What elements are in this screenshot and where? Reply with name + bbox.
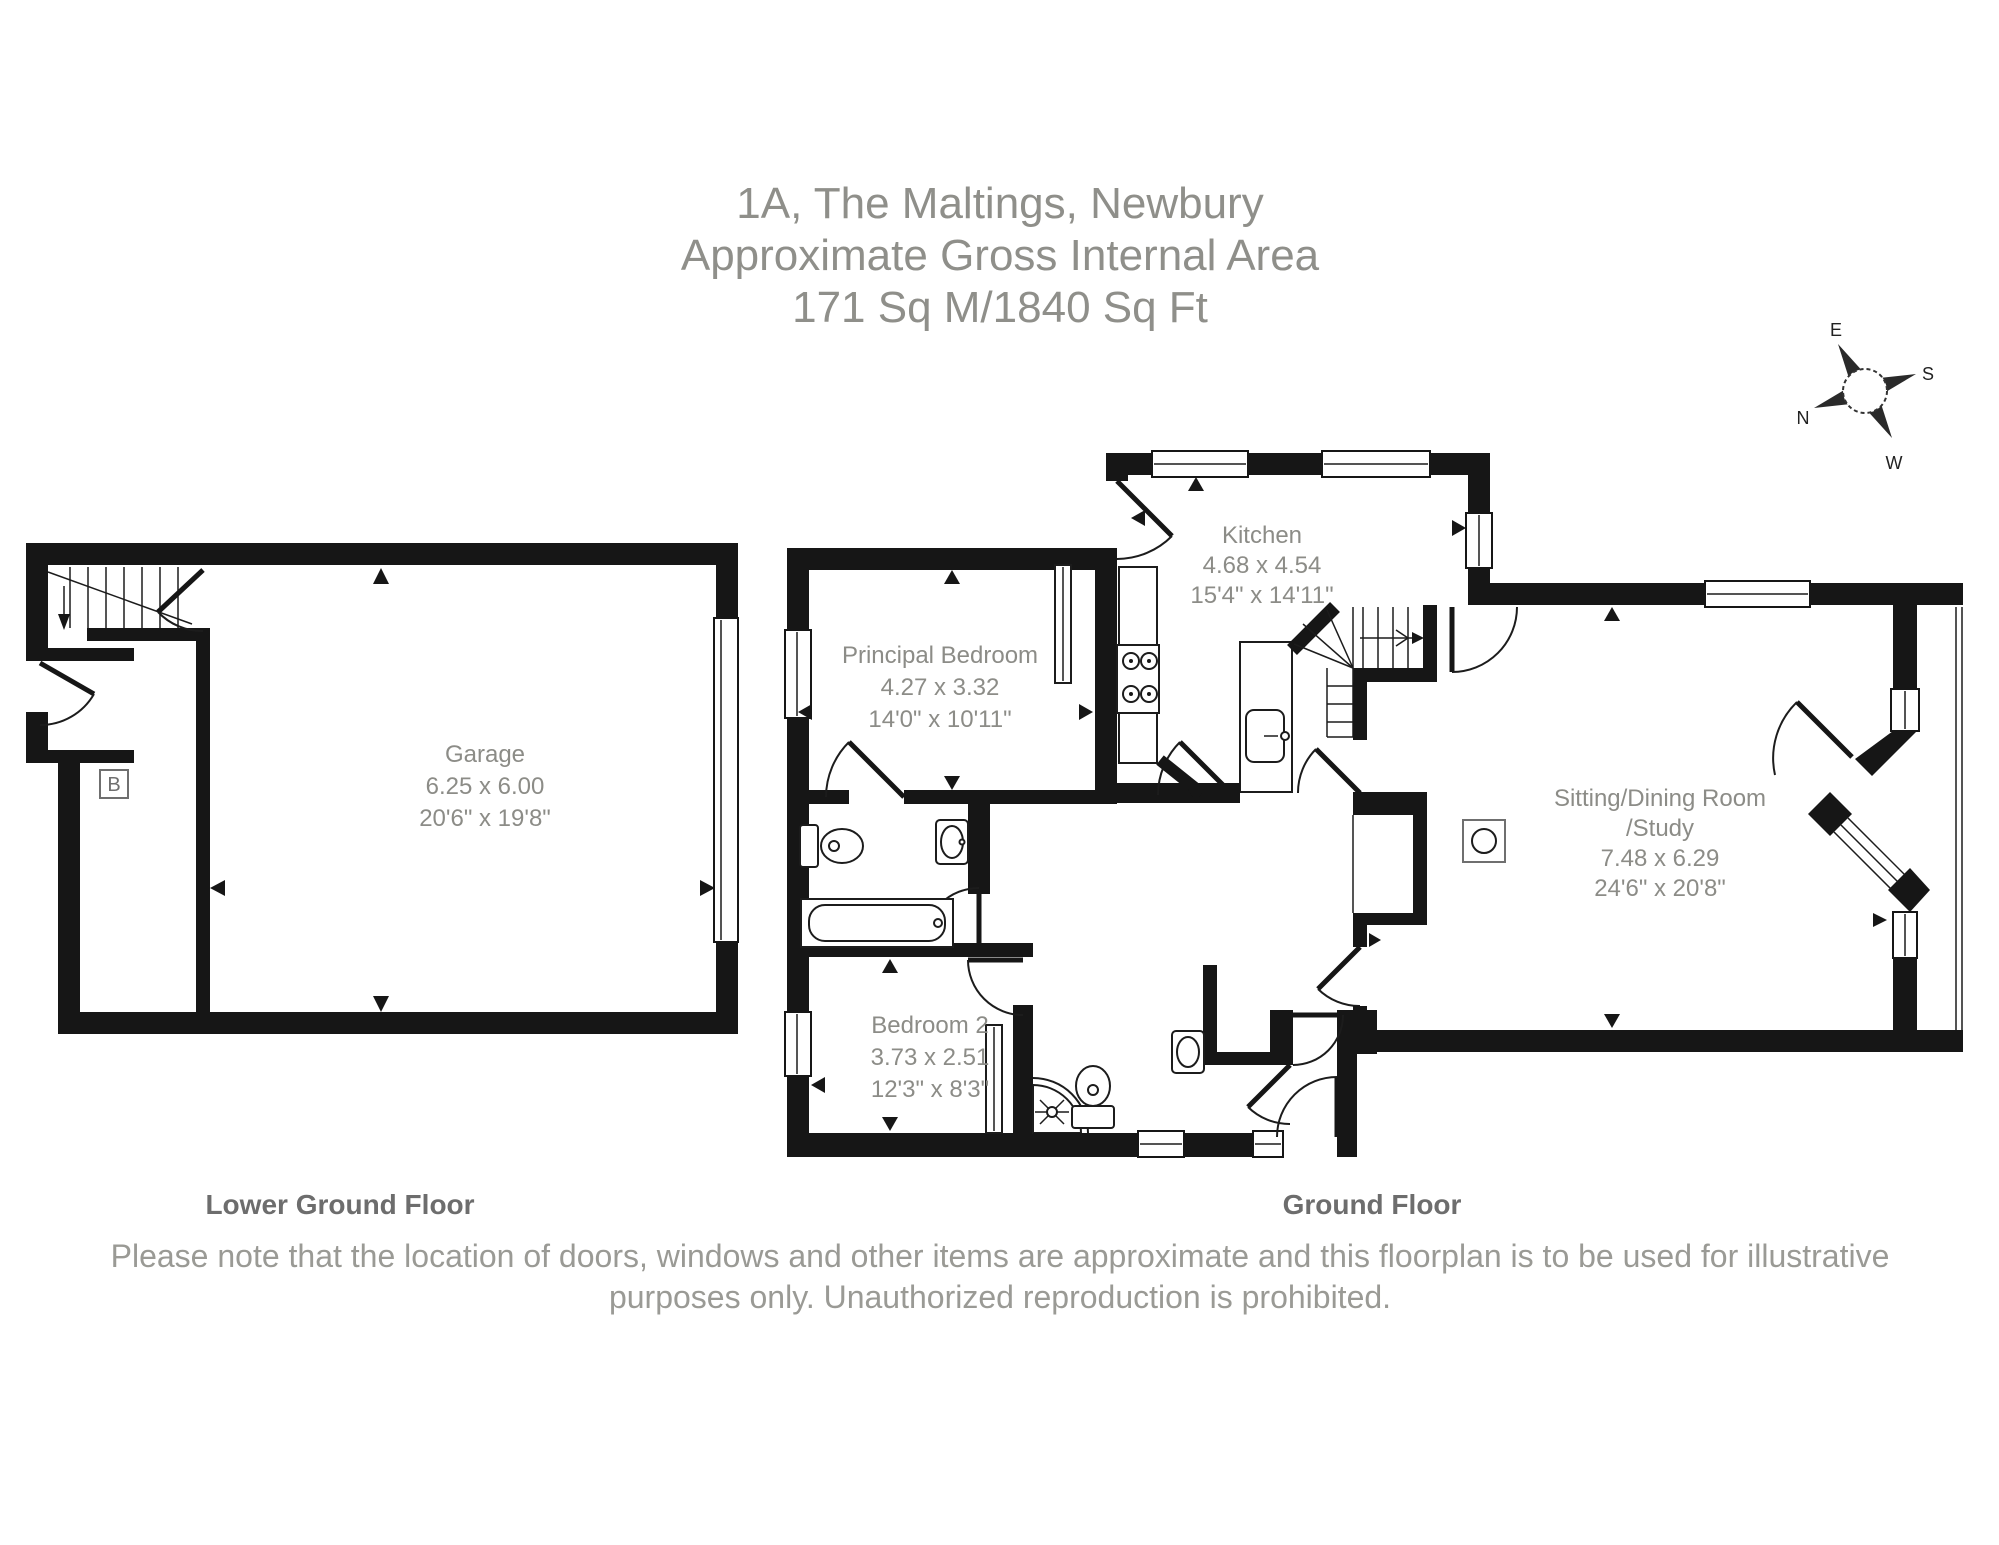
lgf-marker-bottom bbox=[373, 996, 389, 1012]
hall-lower-door bbox=[1293, 1015, 1343, 1065]
sitting-name: Sitting/Dining Room bbox=[1554, 785, 1766, 812]
compass-label-s: S bbox=[1922, 364, 1934, 384]
sitting-upper-door bbox=[1298, 749, 1360, 793]
lgf-marker-left bbox=[210, 880, 225, 896]
showerroom-door bbox=[1248, 1065, 1290, 1124]
title-block: 1A, The Maltings, Newbury Approximate Gr… bbox=[681, 179, 1320, 332]
bathroom-toilet bbox=[800, 825, 863, 867]
ground-floor-caption: Ground Floor bbox=[1283, 1189, 1462, 1220]
sitting-marker-right bbox=[1873, 913, 1887, 927]
entrance-door bbox=[1277, 1077, 1337, 1137]
sitting-top-door bbox=[1452, 607, 1517, 672]
bedroom2-metric: 3.73 x 2.51 bbox=[871, 1044, 990, 1071]
bedroom-window bbox=[785, 630, 811, 718]
lgf-corridor-door bbox=[40, 663, 94, 725]
bedroom2-marker-left bbox=[811, 1077, 825, 1093]
lgf-wall-bottom bbox=[58, 1012, 738, 1034]
principal-bedroom-metric: 4.27 x 3.32 bbox=[881, 674, 1000, 701]
disclaimer-line-2: purposes only. Unauthorized reproduction… bbox=[609, 1279, 1391, 1315]
bedroom2-wall-bottom bbox=[787, 1133, 1033, 1157]
bedroom-marker-top bbox=[944, 570, 960, 584]
kitchen-imperial: 15'4" x 14'11" bbox=[1190, 582, 1333, 609]
lgf-wall-divider bbox=[196, 628, 210, 1012]
hall-marker-right bbox=[1369, 933, 1381, 947]
ground-floor-plan: Kitchen 4.68 x 4.54 15'4" x 14'11" Princ… bbox=[785, 451, 1963, 1157]
kitchen-name: Kitchen bbox=[1222, 522, 1302, 549]
sitting-room-label: Sitting/Dining Room /Study 7.48 x 6.29 2… bbox=[1554, 785, 1766, 902]
bay-joint-lower bbox=[1888, 868, 1930, 912]
lgf-marker-right bbox=[700, 880, 715, 896]
lgf-wall-stub-2 bbox=[26, 750, 134, 763]
bedroom2-name: Bedroom 2 bbox=[871, 1012, 988, 1039]
sitting-bay bbox=[1773, 605, 1962, 1030]
bathroom-basin bbox=[936, 820, 968, 864]
sitting-name2: /Study bbox=[1626, 815, 1694, 842]
compass-label-w: W bbox=[1886, 453, 1903, 473]
kitchen-metric: 4.68 x 4.54 bbox=[1203, 552, 1322, 579]
lgf-stair-arrow-down bbox=[58, 614, 70, 630]
garage-door-window bbox=[714, 618, 738, 942]
bedroom-wall-right bbox=[1095, 548, 1117, 804]
compass-label-n: N bbox=[1797, 408, 1810, 428]
showerroom-basin bbox=[1172, 1031, 1204, 1073]
chimney-breast bbox=[1353, 792, 1427, 925]
bedroom2-imperial: 12'3" x 8'3" bbox=[871, 1076, 989, 1103]
bathtub bbox=[801, 899, 953, 947]
sitting-marker-top bbox=[1604, 607, 1620, 621]
kitchen-wall-left-top bbox=[1106, 453, 1128, 481]
compass-hub bbox=[1843, 369, 1887, 413]
kitchen-wall-right-upper bbox=[1468, 453, 1490, 513]
lgf-wall-right-upper bbox=[716, 543, 738, 623]
bedroom2-window bbox=[785, 1012, 811, 1076]
kitchen-marker-top bbox=[1188, 477, 1204, 491]
hall-divider-stub-mid bbox=[1353, 925, 1367, 947]
lgf-wall-left-upper bbox=[26, 543, 48, 648]
compass-label-e: E bbox=[1830, 320, 1842, 340]
bedroom2-marker-bottom bbox=[882, 1117, 898, 1131]
entrance-wall-right bbox=[1337, 1052, 1357, 1157]
lower-ground-floor-caption: Lower Ground Floor bbox=[205, 1189, 474, 1220]
bedroom2-marker-top bbox=[882, 959, 898, 973]
lgf-garage-door bbox=[158, 570, 203, 631]
title-area-value: 171 Sq M/1840 Sq Ft bbox=[792, 283, 1208, 332]
bedroom-marker-right bbox=[1079, 704, 1093, 720]
sitting-imperial: 24'6" x 20'8" bbox=[1594, 875, 1726, 902]
bathroom-wall-right bbox=[968, 804, 990, 894]
bedroom2-wall-right bbox=[1013, 1005, 1033, 1133]
disclaimer-line-1: Please note that the location of doors, … bbox=[111, 1238, 1890, 1274]
principal-bedroom-room-label: Principal Bedroom 4.27 x 3.32 14'0" x 10… bbox=[842, 642, 1038, 733]
bedroom-wall-bottom-left bbox=[787, 790, 849, 804]
wood-stove bbox=[1463, 820, 1505, 862]
entrance-wall-bottom-1 bbox=[1033, 1133, 1138, 1157]
sitting-marker-bottom bbox=[1604, 1014, 1620, 1028]
bedroom-door bbox=[826, 742, 904, 797]
lower-ground-floor-plan: B Garage 6.25 x 6.00 20'6" x 19'8" bbox=[26, 543, 738, 1034]
lgf-marker-top bbox=[373, 568, 389, 584]
garage-imperial: 20'6" x 19'8" bbox=[419, 805, 551, 832]
kitchen-marker-right bbox=[1452, 520, 1466, 536]
sitting-metric: 7.48 x 6.29 bbox=[1601, 845, 1720, 872]
sitting-lower-door bbox=[1318, 947, 1360, 1006]
principal-bedroom-imperial: 14'0" x 10'11" bbox=[868, 706, 1011, 733]
entrance-wall-bottom-2 bbox=[1184, 1133, 1253, 1157]
hall-divider-stub-top bbox=[1353, 682, 1367, 740]
garage-metric: 6.25 x 6.00 bbox=[426, 773, 545, 800]
kitchen-room-label: Kitchen 4.68 x 4.54 15'4" x 14'11" bbox=[1190, 522, 1333, 609]
showerroom-wall-right bbox=[1203, 965, 1217, 1053]
garage-room-label: Garage 6.25 x 6.00 20'6" x 19'8" bbox=[419, 741, 551, 832]
bedroom-wall-bottom-right bbox=[904, 790, 1117, 804]
lgf-wall-top bbox=[26, 543, 738, 565]
hob bbox=[1117, 645, 1159, 713]
hall-wall-stub bbox=[1270, 1010, 1293, 1055]
sitting-wall-bottom bbox=[1357, 1030, 1963, 1052]
bedroom-wardrobe bbox=[1055, 565, 1071, 683]
floorplan-page: 1A, The Maltings, Newbury Approximate Gr… bbox=[0, 0, 1999, 1545]
principal-bedroom-name: Principal Bedroom bbox=[842, 642, 1038, 669]
lgf-wall-stub-1 bbox=[26, 648, 134, 661]
bedroom2-room-label: Bedroom 2 3.73 x 2.51 12'3" x 8'3" bbox=[871, 1012, 990, 1103]
lgf-wall-left-lower bbox=[58, 763, 80, 1012]
showerroom-toilet bbox=[1072, 1066, 1114, 1128]
title-address: 1A, The Maltings, Newbury bbox=[736, 179, 1263, 228]
disclaimer-block: Please note that the location of doors, … bbox=[111, 1238, 1890, 1315]
floor-captions: Lower Ground Floor Ground Floor bbox=[205, 1189, 1461, 1220]
kitchen-marker-left bbox=[1131, 510, 1145, 526]
kitchen-counter-sink bbox=[1240, 642, 1292, 792]
kitchen-counter-left bbox=[1117, 567, 1159, 763]
compass-rose: E S N W bbox=[1797, 320, 1935, 473]
floorplan-canvas: 1A, The Maltings, Newbury Approximate Gr… bbox=[0, 0, 1999, 1545]
bedroom-marker-bottom bbox=[944, 776, 960, 790]
garage-name: Garage bbox=[445, 741, 525, 768]
boiler-label: B bbox=[107, 774, 120, 796]
title-area-caption: Approximate Gross Internal Area bbox=[681, 231, 1320, 280]
hall-divider-stub-bottom bbox=[1353, 1006, 1367, 1032]
bay-door bbox=[1773, 702, 1852, 775]
